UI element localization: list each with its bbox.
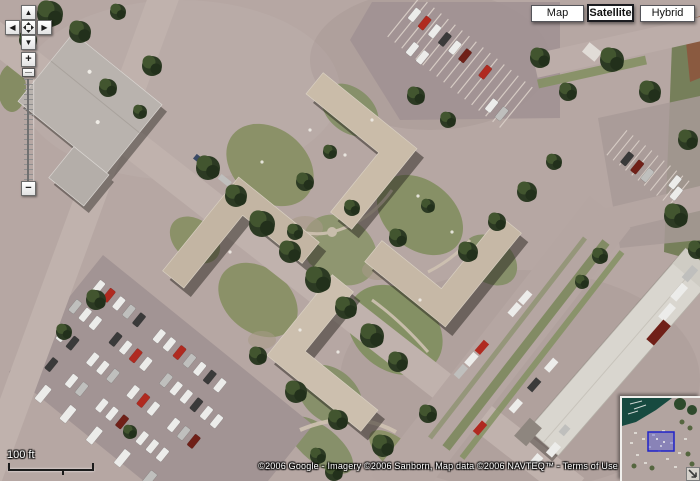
center-reset-icon (23, 22, 34, 33)
zoom-in-icon: + (25, 53, 31, 65)
overview-viewport-box[interactable] (648, 432, 674, 451)
zoom-out-icon: − (25, 182, 31, 194)
scale-bar-midtick (62, 469, 64, 475)
map-type-button-satellite[interactable]: Satellite (587, 4, 634, 22)
map-viewport[interactable]: .cw{fill:#ececea}.cs{fill:#bfbfbd}.ck{fi… (0, 0, 700, 481)
pan-up-icon: ▲ (25, 8, 33, 17)
attribution-text: ©2006 Google - Imagery ©2006 Sanborn, Ma… (258, 461, 618, 471)
pan-center-button[interactable] (21, 20, 36, 35)
zoom-in-button[interactable]: + (21, 52, 36, 67)
zoom-slider-track[interactable] (24, 79, 33, 181)
pan-left-button[interactable]: ◀ (5, 20, 20, 35)
pan-right-icon: ▶ (41, 23, 47, 32)
scale-bar (8, 469, 94, 471)
map-type-button-hybrid[interactable]: Hybrid (640, 5, 695, 22)
zoom-slider-handle[interactable] (22, 68, 35, 77)
zoom-out-button[interactable]: − (21, 181, 36, 196)
scale-bar-label: 100 ft (7, 449, 35, 461)
map-type-button-map[interactable]: Map (531, 5, 584, 22)
overview-collapse-button[interactable] (686, 467, 700, 481)
collapse-arrow-icon (687, 468, 699, 480)
pan-up-button[interactable]: ▲ (21, 5, 36, 20)
pan-left-icon: ◀ (9, 23, 15, 32)
satellite-imagery[interactable]: .cw{fill:#ececea}.cs{fill:#bfbfbd}.ck{fi… (0, 0, 700, 481)
pan-right-button[interactable]: ▶ (37, 20, 52, 35)
pan-down-button[interactable]: ▼ (21, 35, 36, 50)
overview-map[interactable] (620, 396, 700, 481)
pan-down-icon: ▼ (25, 38, 33, 47)
